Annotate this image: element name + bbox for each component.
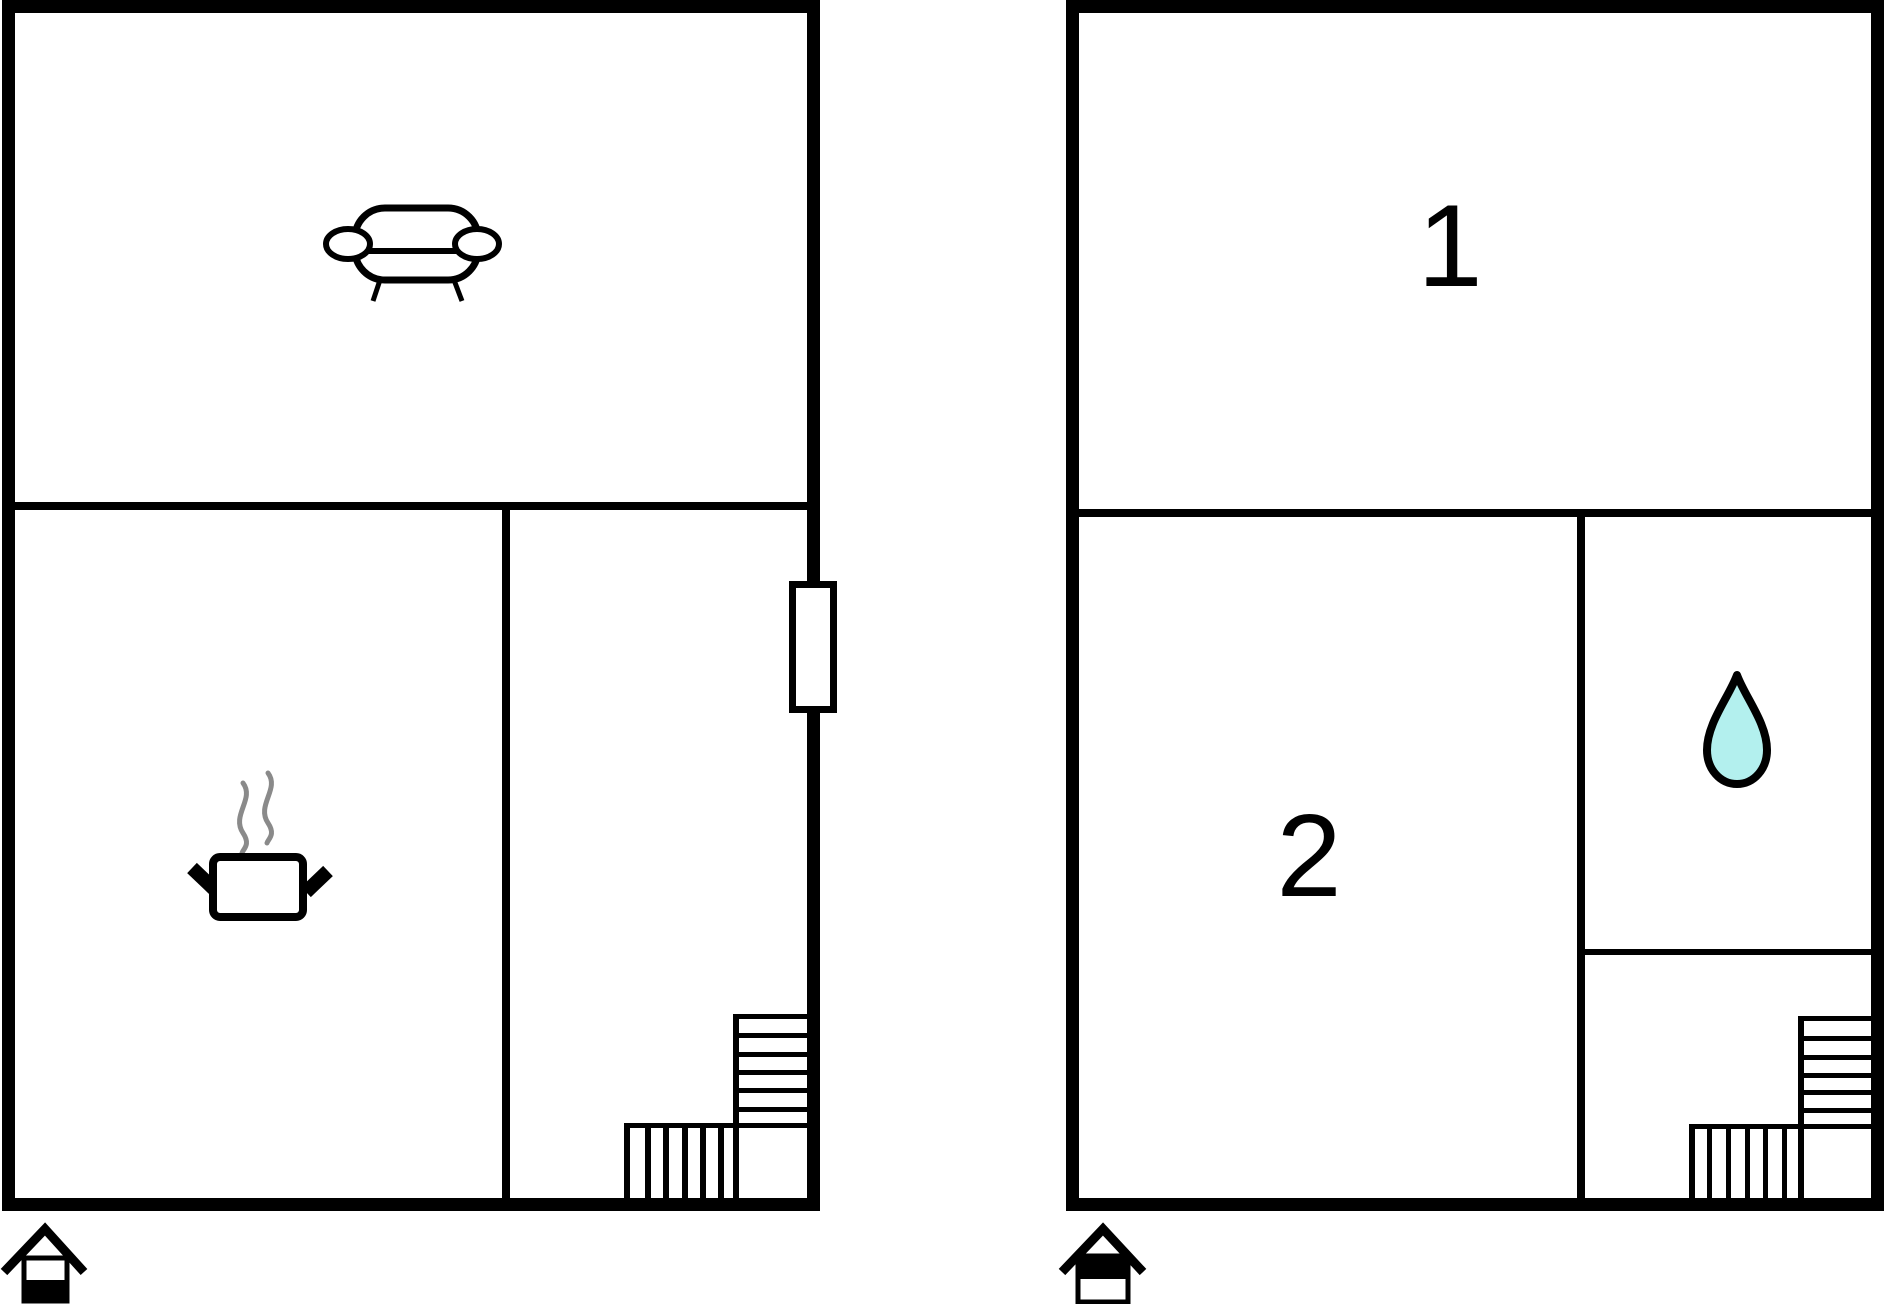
stair-edge [1689, 1124, 1695, 1198]
outer-wall-left [1066, 0, 1079, 1211]
room-label-1: 1 [1390, 180, 1510, 310]
stair-tread [1804, 1108, 1871, 1113]
stair-tread [1763, 1129, 1768, 1198]
stair-tread [1804, 1090, 1871, 1095]
stair-tread [1804, 1055, 1871, 1060]
stair-tread [1707, 1129, 1712, 1198]
outer-wall-bottom [1066, 1198, 1884, 1211]
stair-edge [1798, 1016, 1871, 1021]
interior-wall-vertical [1577, 517, 1585, 1198]
stair-edge [1689, 1124, 1871, 1129]
stair-tread [1782, 1129, 1787, 1198]
house-upper-floor-icon [1054, 1220, 1150, 1304]
outer-wall-right [1871, 0, 1884, 1211]
bathroom-wall-horizontal [1585, 949, 1871, 955]
floorplan-canvas: 1 2 [0, 0, 1884, 1304]
stair-tread [1745, 1129, 1750, 1198]
upper-floor-plan: 1 2 [0, 0, 1884, 1304]
room-label-2: 2 [1249, 790, 1369, 920]
stair-tread [1726, 1129, 1731, 1198]
outer-wall-top [1066, 0, 1884, 13]
stair-tread [1804, 1073, 1871, 1078]
stair-edge [1798, 1016, 1804, 1198]
stair-tread [1804, 1036, 1871, 1041]
water-drop-icon [1698, 665, 1776, 795]
interior-wall-horizontal [1079, 509, 1871, 517]
